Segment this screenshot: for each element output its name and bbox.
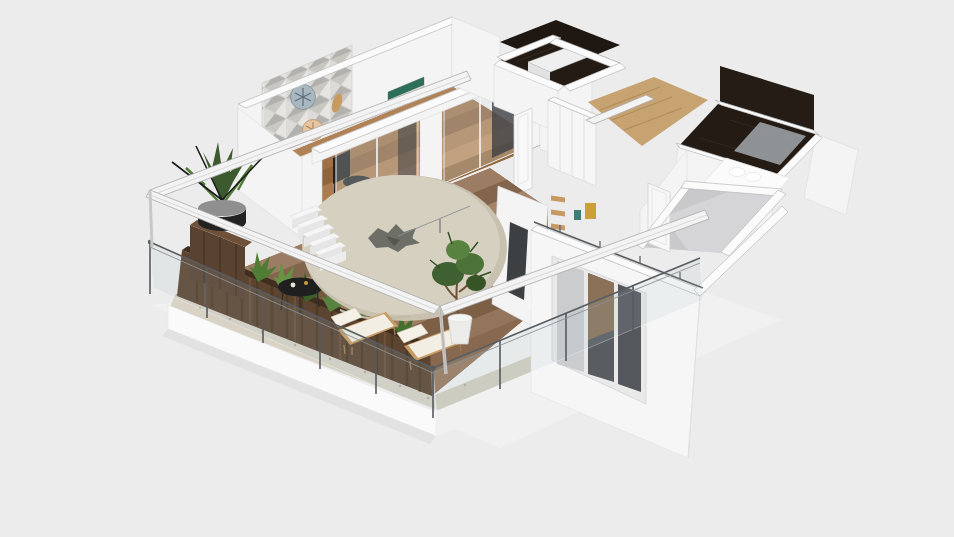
pillow [745,173,761,182]
gold-artwork [585,203,596,219]
pillow [729,168,745,177]
floorplan-3d-viewport[interactable] [0,0,954,537]
teal-artwork [574,210,581,220]
render-canvas [0,0,954,537]
